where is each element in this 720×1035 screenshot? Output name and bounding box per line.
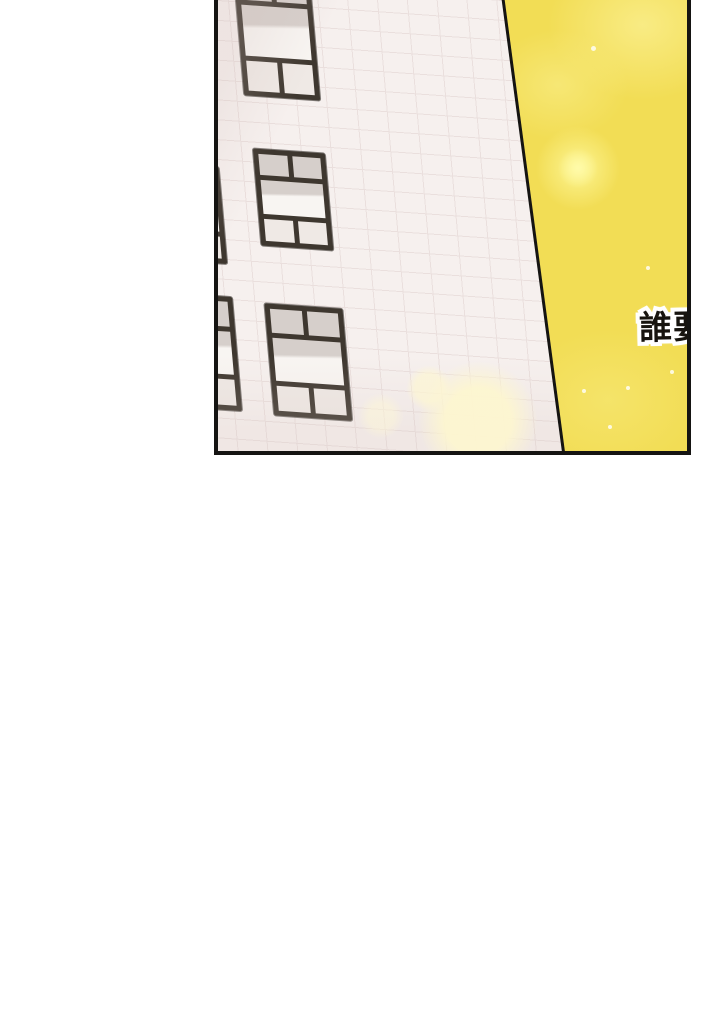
light-speck xyxy=(670,370,674,374)
building-window-top xyxy=(233,0,320,101)
building-window-bottom xyxy=(264,303,352,420)
caption-text: 誰要去網咖? xyxy=(639,298,691,349)
light-speck xyxy=(608,425,612,429)
sun-glow xyxy=(536,126,620,210)
caption: 誰要去網咖? 誰要去網咖? xyxy=(639,297,691,349)
sky-cloud xyxy=(548,0,691,100)
building-window-middle xyxy=(253,149,333,251)
light-speck xyxy=(646,266,650,270)
comic-page: 誰要去網咖? 誰要去網咖? xyxy=(0,0,720,1035)
light-speck xyxy=(626,386,630,390)
comic-panel: 誰要去網咖? 誰要去網咖? xyxy=(214,0,691,455)
light-speck xyxy=(582,389,586,393)
sun-glow-core xyxy=(558,148,598,188)
light-speck xyxy=(591,46,596,51)
